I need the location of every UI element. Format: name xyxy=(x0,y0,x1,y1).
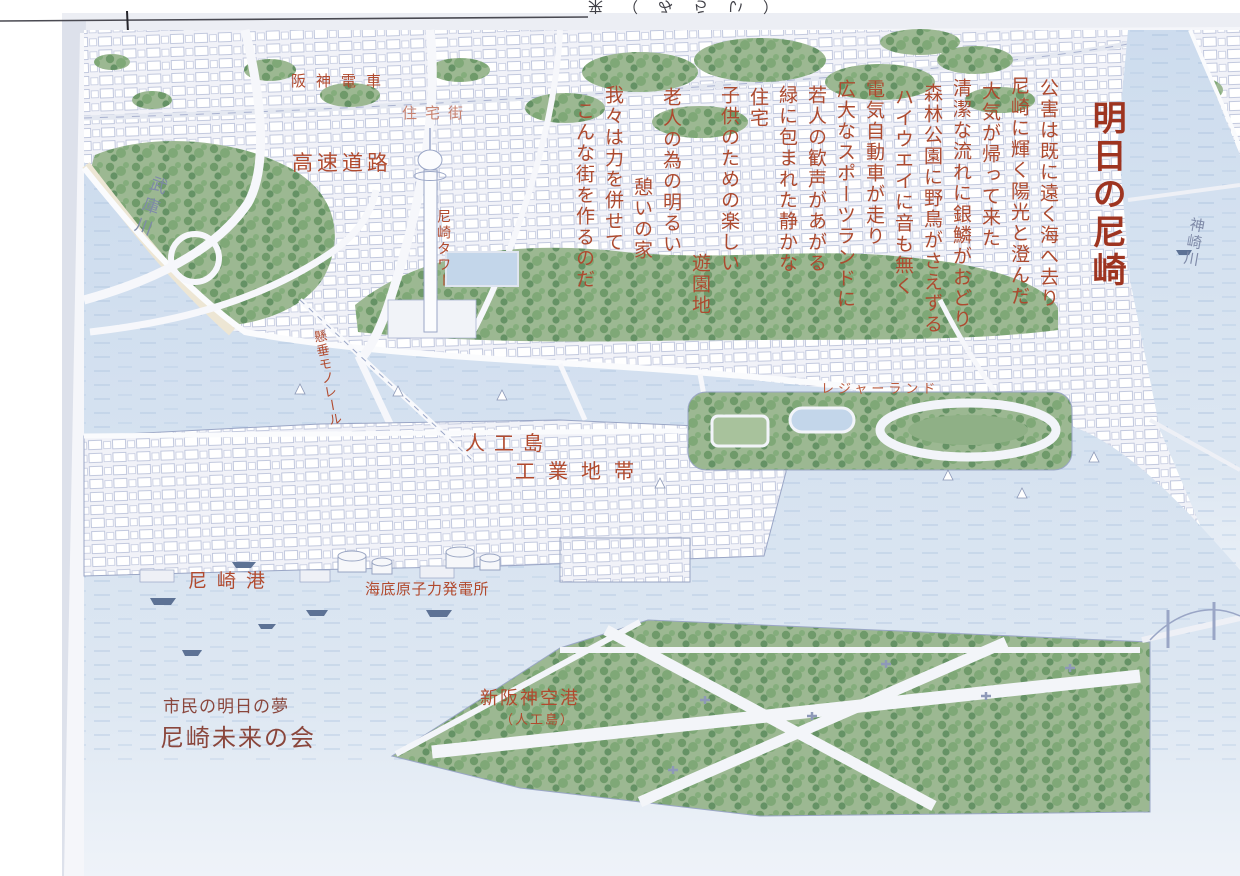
tower-pond xyxy=(446,252,518,286)
credit-organization: 尼崎未来の会 xyxy=(160,726,316,754)
vision-poem: 公害は既に遠く海へ去り 尼崎に輝く陽光と澄んだ 大気が帰って来た 清潔な流れに銀… xyxy=(569,73,1062,335)
label-airport-note: （人工島） xyxy=(500,713,575,728)
poem-column: 我々は力を併せて xyxy=(598,73,627,335)
poem-column: 電気自動車が走り xyxy=(859,73,888,335)
map-title: 明日の尼崎 xyxy=(1086,100,1125,290)
poem-column: 尼崎に輝く陽光と澄んだ xyxy=(1004,73,1033,335)
poem-column: 清潔な流れに銀鱗がおどり xyxy=(946,73,975,335)
poem-column: 大気が帰って来た xyxy=(975,73,1004,335)
label-expressway: 高速道路 xyxy=(292,151,392,175)
poem-column: 緑に包まれた静かな xyxy=(772,73,801,335)
label-amagasaki-tower: 尼崎タワー xyxy=(434,209,450,289)
poem-column: 公害は既に遠く海へ去り xyxy=(1033,73,1062,335)
label-industrial-zone: 工業地帯 xyxy=(515,461,647,484)
artificial-island xyxy=(84,420,788,582)
scan-showthrough-text: 来（みらい） xyxy=(588,0,798,14)
label-amagasaki-port: 尼崎港 xyxy=(188,571,275,593)
poem-column: こんな街を作るのだ xyxy=(569,73,598,335)
label-new-hanshin-airport: 新阪神空港 xyxy=(480,688,580,709)
poem-column: 森林公園に野鳥がさえずる xyxy=(917,73,946,335)
label-residential-area: 住宅街 xyxy=(402,106,471,123)
poem-column: 若人の歓声があがる xyxy=(801,73,830,335)
label-hanshin-train: 阪神電車 xyxy=(291,74,391,91)
label-undersea-nuclear-plant: 海底原子力発電所 xyxy=(365,582,489,599)
poem-column: 遊園地 xyxy=(685,73,714,335)
poem-column: 広大なスポーツランドに xyxy=(830,73,859,335)
scan-tick-left xyxy=(127,11,128,33)
leisure-land-island xyxy=(688,392,1072,470)
label-artificial-island: 人工島 xyxy=(465,433,552,456)
credit-subtitle: 市民の明日の夢 xyxy=(163,697,289,717)
poem-column: 住宅 xyxy=(743,73,772,335)
leisure-pool xyxy=(790,408,854,432)
leisure-field xyxy=(712,416,768,446)
scanned-map-page: 来（みらい） 明日の尼崎 公害は既に遠く海へ去り 尼崎に輝く陽光と澄んだ 大気が… xyxy=(0,0,1240,876)
poem-column: 憩いの家 xyxy=(627,73,656,335)
poem-column: 老人の為の明るい xyxy=(656,73,685,335)
poem-column: 子供のための楽しい xyxy=(714,73,743,335)
poem-column: ハイウエイに音も無く xyxy=(888,73,917,335)
label-leisure-land: レジャーランド xyxy=(821,382,939,397)
